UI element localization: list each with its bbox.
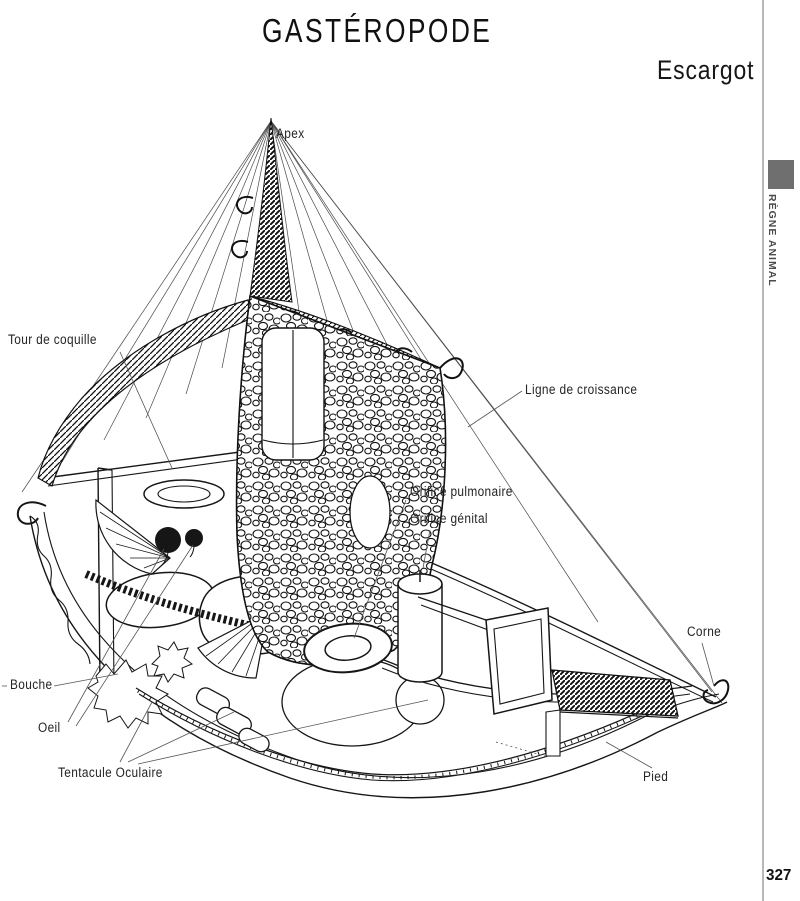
right-structures — [398, 570, 728, 756]
eye-left — [155, 527, 181, 553]
left-horn — [18, 502, 46, 523]
label-corne: Corne — [687, 625, 721, 639]
genital-duct-cylinder — [398, 584, 442, 682]
page-subtitle: Escargot — [657, 55, 754, 86]
sidebar-category-label: RÈGNE ANIMAL — [766, 194, 778, 287]
encyclopedia-page: GASTÉROPODE Escargot Apex Tour de coquil… — [0, 0, 800, 901]
label-oeil: Oeil — [38, 721, 61, 735]
hatched-muscle-strip — [552, 670, 678, 716]
label-ligne-de-croissance: Ligne de croissance — [525, 383, 637, 397]
label-orifice-genital: Orifice génital — [410, 512, 488, 526]
page-number: 327 — [766, 867, 791, 885]
label-tentacule-oculaire: Tentacule Oculaire — [58, 766, 163, 780]
label-apex: Apex — [276, 127, 304, 141]
label-tour-de-coquille: Tour de coquille — [8, 333, 97, 347]
sidebar-category-tab — [768, 160, 794, 189]
label-pied: Pied — [643, 770, 668, 784]
eye-right — [185, 529, 203, 547]
sidebar-rule — [762, 0, 764, 901]
label-bouche: Bouche — [10, 678, 52, 692]
label-orifice-pulmonaire: Orifice pulmonaire — [410, 485, 513, 499]
page-title: GASTÉROPODE — [262, 12, 492, 50]
